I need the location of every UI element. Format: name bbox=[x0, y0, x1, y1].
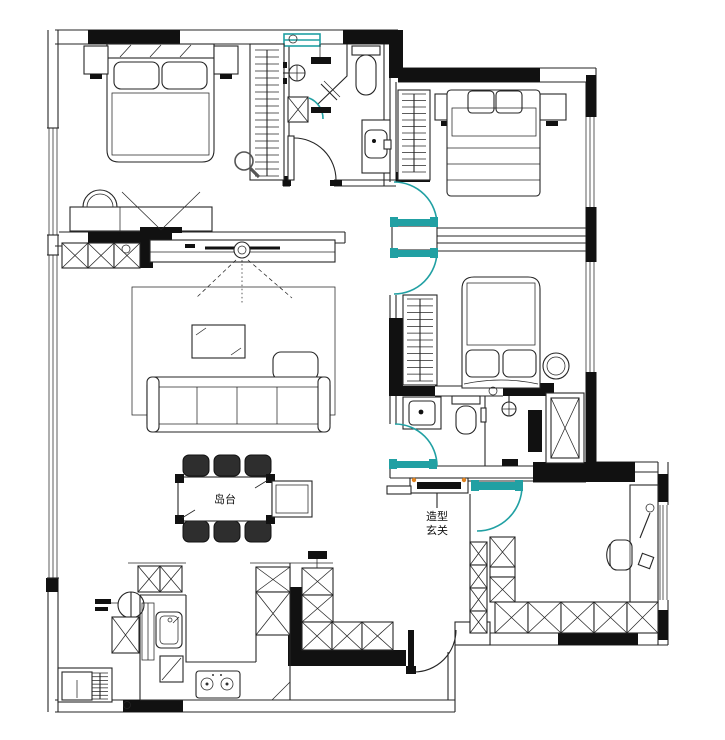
wall-black-segments-part bbox=[288, 650, 406, 666]
hall-door-teal-part bbox=[475, 482, 522, 490]
entry-console-part bbox=[417, 482, 461, 489]
wall-black-segments-part bbox=[586, 75, 596, 117]
dining-chair bbox=[245, 521, 271, 542]
toilet-1-part bbox=[352, 46, 380, 55]
main-entrance-door-part bbox=[408, 630, 414, 672]
tv-console bbox=[150, 240, 335, 262]
nightstand-left bbox=[84, 46, 108, 74]
dining-chair bbox=[214, 455, 240, 476]
island-table-part bbox=[175, 474, 184, 483]
main-entrance-door-part bbox=[414, 630, 456, 672]
bathroom1-door-part bbox=[294, 138, 336, 180]
vanity-1-part bbox=[384, 140, 391, 149]
wall-black-segments-part bbox=[88, 30, 180, 44]
master-bedroom bbox=[70, 44, 284, 233]
floor-plan-canvas: 岛台 bbox=[0, 0, 725, 740]
shower-head-2-icon bbox=[502, 389, 516, 416]
island-table-label: 岛台 bbox=[214, 492, 236, 506]
shoe-cabinet-row bbox=[302, 622, 393, 650]
wall-black-segments-part bbox=[528, 410, 542, 452]
shower-head-icon bbox=[283, 62, 305, 84]
toilet-2 bbox=[452, 396, 486, 434]
dining-chair bbox=[183, 455, 209, 476]
dining-chair bbox=[214, 521, 240, 542]
study bbox=[470, 485, 658, 633]
toilet-2-part bbox=[452, 396, 480, 404]
door-bedroom-top-right-part bbox=[390, 217, 398, 227]
pillow bbox=[468, 91, 494, 113]
wall-black-segments-part bbox=[290, 638, 302, 662]
window-bedroom1-right bbox=[584, 117, 597, 207]
dining-chair bbox=[245, 455, 271, 476]
wardrobe-2 bbox=[398, 90, 430, 180]
shower-area bbox=[283, 44, 347, 104]
storage-cabinet-row bbox=[62, 243, 140, 268]
pillow bbox=[162, 62, 207, 89]
vanity-2 bbox=[403, 397, 441, 429]
washing-machine bbox=[288, 97, 331, 122]
pillow bbox=[503, 350, 536, 377]
bathroom2-door-part bbox=[389, 459, 397, 469]
stove-part bbox=[206, 683, 209, 686]
dining-area: 岛台 bbox=[175, 455, 312, 542]
bedroom-top-right-part bbox=[546, 121, 558, 126]
bathroom1-door-part bbox=[288, 136, 294, 180]
floor-plan-drawing: 岛台 bbox=[0, 0, 725, 740]
bedroom-top-right bbox=[398, 90, 566, 196]
study-cabinet-column-part bbox=[490, 567, 515, 577]
stove-part bbox=[220, 674, 222, 676]
toilet-2-part bbox=[481, 408, 486, 422]
wall-black-segments-part bbox=[389, 386, 435, 396]
armrest-left bbox=[147, 377, 159, 432]
shower-head-icon-part bbox=[283, 62, 287, 68]
dining-chair bbox=[183, 521, 209, 542]
window-living-left bbox=[47, 255, 59, 578]
bedroom-mid-right bbox=[403, 277, 569, 395]
window-study-right bbox=[659, 505, 669, 600]
bathroom1-door bbox=[288, 136, 336, 180]
hall-door-teal-part bbox=[471, 480, 479, 491]
desk bbox=[630, 485, 658, 602]
main-entrance-door-part bbox=[406, 666, 416, 674]
entry-console-part bbox=[412, 478, 416, 482]
wall-black-segments-part bbox=[658, 474, 668, 502]
office-chair-part bbox=[610, 540, 632, 570]
utility-closet bbox=[58, 668, 112, 702]
coffee-table bbox=[192, 325, 245, 358]
entry-console: 造型 玄关 bbox=[387, 478, 468, 537]
washing-machine-part bbox=[311, 107, 331, 113]
master-bedroom-part bbox=[90, 74, 102, 79]
nightstand bbox=[540, 94, 566, 120]
projector bbox=[234, 242, 250, 258]
chaise-back bbox=[273, 352, 318, 380]
pillow bbox=[466, 350, 499, 377]
door-bedroom-mid-right-part bbox=[390, 248, 398, 258]
entry-console-part bbox=[462, 478, 466, 482]
dressing-table bbox=[70, 190, 212, 233]
towel-rail bbox=[311, 44, 331, 64]
desk-part bbox=[630, 485, 658, 602]
stove-part bbox=[212, 674, 214, 676]
kitchen bbox=[58, 563, 293, 709]
window-study-right-part bbox=[659, 505, 669, 600]
vanity-1 bbox=[362, 120, 391, 173]
projection-beam bbox=[196, 260, 292, 305]
wall-black-segments-part bbox=[398, 68, 540, 82]
wall-black-segments-part bbox=[330, 180, 342, 186]
hall-door-teal-part bbox=[477, 486, 522, 531]
wall-black-segments-part bbox=[533, 462, 635, 482]
pillow bbox=[114, 62, 159, 89]
towel-rail-part bbox=[311, 57, 331, 64]
pillow bbox=[496, 91, 522, 113]
water-purifier-part bbox=[95, 607, 108, 611]
door-bedroom-mid-right bbox=[390, 248, 438, 294]
bathroom2-door-part bbox=[429, 459, 437, 469]
armrest-right bbox=[318, 377, 330, 432]
island-table-part bbox=[175, 515, 184, 524]
projection-beam-part bbox=[248, 260, 292, 298]
wall-black-segments-part bbox=[586, 207, 596, 262]
nightstand-right bbox=[214, 46, 238, 74]
bathroom-main bbox=[283, 35, 391, 180]
bathroom-2 bbox=[389, 389, 584, 469]
entry-feature-label-2: 玄关 bbox=[426, 523, 448, 537]
stove-part bbox=[226, 683, 229, 686]
bed-2 bbox=[447, 90, 540, 196]
stove-part bbox=[196, 671, 240, 698]
wall-black-segments-part bbox=[389, 318, 403, 392]
toilet-1 bbox=[352, 46, 380, 95]
hall-door-teal bbox=[471, 480, 523, 531]
bed-3 bbox=[462, 277, 540, 388]
study-cabinet-narrow-column bbox=[470, 542, 487, 633]
water-purifier-part bbox=[95, 599, 111, 604]
office-chair bbox=[607, 536, 632, 574]
coffee-table-part bbox=[192, 325, 245, 358]
stove bbox=[196, 671, 240, 698]
switch-symbol bbox=[308, 551, 327, 568]
bathroom2-door bbox=[389, 424, 437, 469]
toilet-2-part bbox=[456, 406, 476, 434]
window-master-left bbox=[47, 128, 59, 235]
duct-shaft bbox=[546, 393, 584, 463]
island-extension bbox=[272, 481, 312, 517]
wall-black-segments-part bbox=[46, 578, 58, 592]
window-bedroom2-right bbox=[584, 262, 597, 372]
shower-head-2-icon-part bbox=[503, 389, 516, 396]
wall-black-segments-part bbox=[586, 372, 596, 468]
projection-beam-part bbox=[196, 260, 236, 298]
double-bed bbox=[107, 44, 214, 162]
toilet-1-part bbox=[356, 55, 376, 95]
dressing-chair bbox=[83, 190, 117, 207]
shoe-cabinet-column bbox=[302, 568, 333, 622]
vanity-1-part bbox=[372, 139, 376, 143]
wall-black-segments-part bbox=[502, 459, 518, 466]
study-cabinet-column bbox=[490, 537, 515, 602]
corridor-wall-stub bbox=[392, 226, 437, 250]
wall-black-segments-part bbox=[558, 633, 638, 645]
tv-console-part bbox=[185, 244, 195, 248]
island-table: 岛台 bbox=[175, 474, 275, 524]
living-room bbox=[62, 240, 335, 432]
corner-shelf bbox=[272, 682, 290, 700]
master-wardrobe bbox=[250, 44, 284, 180]
door-bedroom-top-right bbox=[390, 182, 438, 227]
switch-symbol-part bbox=[308, 551, 327, 559]
kitchen-sink bbox=[156, 612, 182, 648]
vanity-2-part bbox=[419, 410, 424, 415]
study-cabinet-row bbox=[495, 602, 658, 633]
entry-console-part bbox=[387, 486, 411, 494]
sofa bbox=[147, 352, 330, 432]
shower-head-icon-part bbox=[283, 78, 287, 84]
master-bedroom-part bbox=[220, 74, 232, 79]
wardrobe-3 bbox=[403, 295, 437, 385]
water-purifier bbox=[95, 592, 144, 618]
entry-feature-label-1: 造型 bbox=[426, 509, 448, 523]
wall-black-segments-part bbox=[123, 700, 183, 712]
wall-black-segments-part bbox=[658, 610, 668, 640]
